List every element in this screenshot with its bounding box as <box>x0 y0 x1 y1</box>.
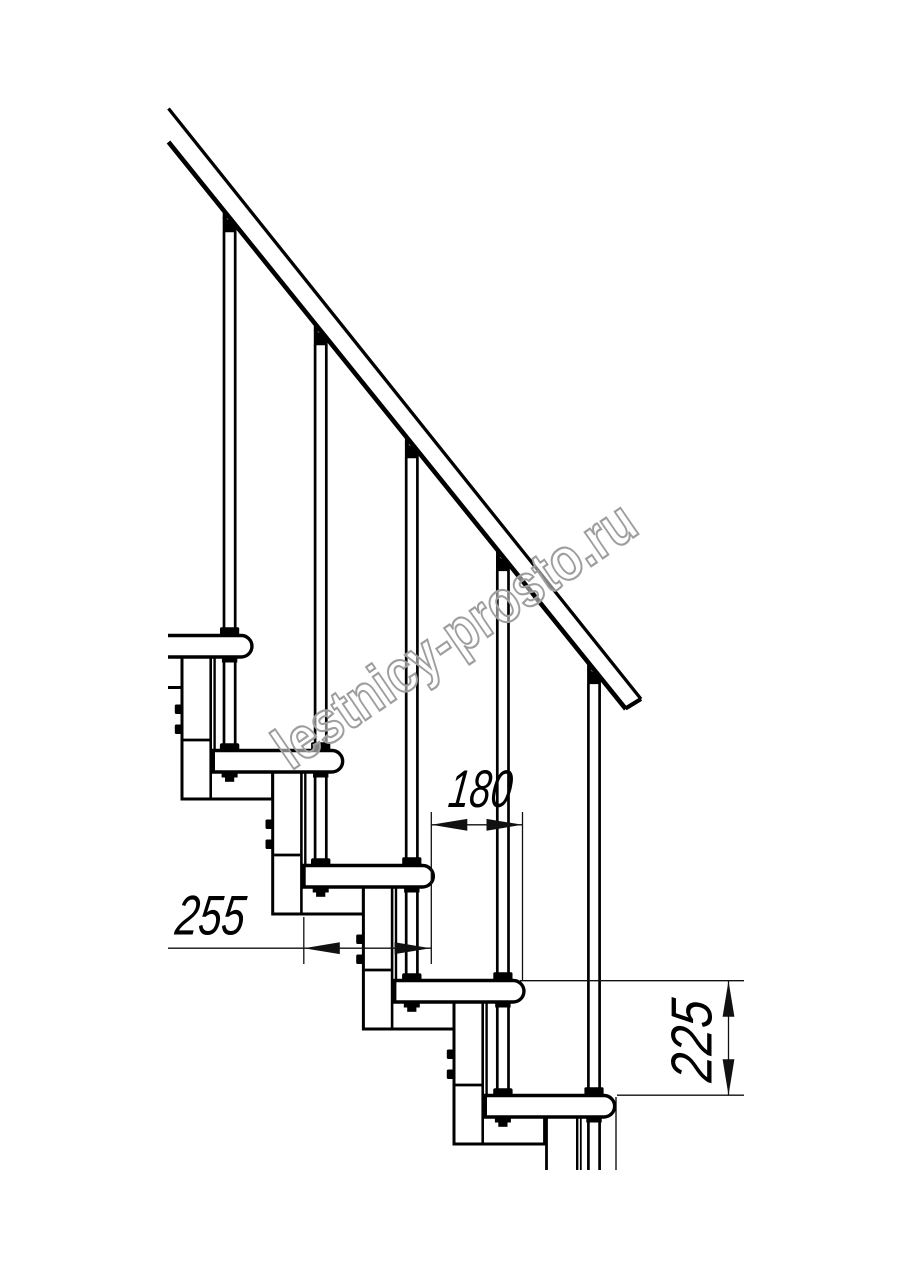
svg-text:180: 180 <box>446 760 517 819</box>
svg-text:225: 225 <box>660 995 725 1085</box>
svg-text:255: 255 <box>172 884 250 947</box>
